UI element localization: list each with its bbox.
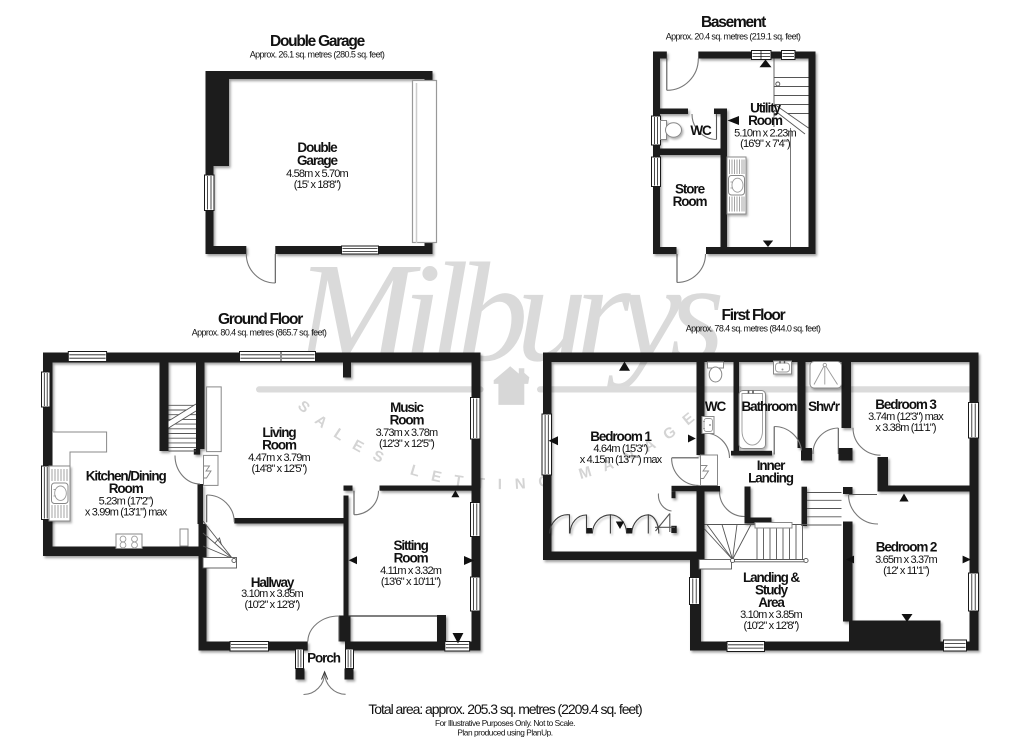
svg-text:Bedroom 3: Bedroom 3 xyxy=(875,397,937,412)
svg-text:Double Garage: Double Garage xyxy=(270,33,366,50)
svg-text:Bathroom: Bathroom xyxy=(742,399,798,414)
svg-text:Approx. 20.4 sq. metres (219.1: Approx. 20.4 sq. metres (219.1 sq. feet) xyxy=(666,32,801,42)
svg-text:Landing: Landing xyxy=(748,471,794,486)
svg-text:Approx. 78.4 sq. metres (844.0: Approx. 78.4 sq. metres (844.0 sq. feet) xyxy=(686,324,821,334)
svg-text:(10'2" x 12'8"): (10'2" x 12'8") xyxy=(245,599,300,611)
svg-text:First Floor: First Floor xyxy=(722,307,786,324)
svg-text:For Illustrative Purposes Only: For Illustrative Purposes Only. Not to S… xyxy=(435,718,575,728)
svg-text:(15' x 18'8"): (15' x 18'8") xyxy=(294,179,341,191)
svg-text:Room: Room xyxy=(109,481,144,496)
svg-text:Approx. 26.1 sq. metres (280.5: Approx. 26.1 sq. metres (280.5 sq. feet) xyxy=(250,50,385,60)
svg-text:Room: Room xyxy=(673,194,708,209)
svg-text:x 4.15m (13'7") max: x 4.15m (13'7") max xyxy=(580,454,663,466)
svg-text:(12' x 11'1"): (12' x 11'1") xyxy=(883,565,929,577)
svg-text:Milburys: Milburys xyxy=(294,233,720,391)
svg-text:Shw'r: Shw'r xyxy=(808,399,841,414)
svg-text:Room: Room xyxy=(262,438,297,453)
svg-text:WC: WC xyxy=(690,123,712,138)
svg-text:Room: Room xyxy=(390,413,425,428)
svg-text:(13'6" x 10'11"): (13'6" x 10'11") xyxy=(381,576,441,588)
svg-text:Bedroom 2: Bedroom 2 xyxy=(876,540,937,555)
svg-text:(10'2" x 12'8"): (10'2" x 12'8") xyxy=(744,620,799,632)
svg-text:Area: Area xyxy=(758,595,785,610)
svg-text:(14'8" x 12'5"): (14'8" x 12'5") xyxy=(252,463,307,475)
svg-text:Garage: Garage xyxy=(297,153,339,168)
svg-text:Ground Floor: Ground Floor xyxy=(218,311,303,328)
svg-text:Basement: Basement xyxy=(701,14,766,31)
svg-text:Room: Room xyxy=(394,551,429,566)
svg-text:Plan produced using PlanUp.: Plan produced using PlanUp. xyxy=(457,728,552,738)
svg-text:Room: Room xyxy=(748,113,783,128)
svg-text:x 3.99m (13'1") max: x 3.99m (13'1") max xyxy=(85,507,168,519)
svg-text:x 3.38m (11'1"): x 3.38m (11'1") xyxy=(875,422,935,434)
svg-text:Total area: approx. 205.3 sq.: Total area: approx. 205.3 sq. metres (22… xyxy=(368,701,642,717)
svg-text:Approx. 80.4 sq. metres (865.7: Approx. 80.4 sq. metres (865.7 sq. feet) xyxy=(192,328,327,338)
svg-text:WC: WC xyxy=(705,399,727,414)
svg-text:Porch: Porch xyxy=(307,651,341,666)
svg-text:(16'9" x 7'4"): (16'9" x 7'4") xyxy=(740,138,790,150)
svg-text:Bedroom 1: Bedroom 1 xyxy=(590,429,652,444)
svg-text:(12'3" x 12'5"): (12'3" x 12'5") xyxy=(379,438,434,450)
